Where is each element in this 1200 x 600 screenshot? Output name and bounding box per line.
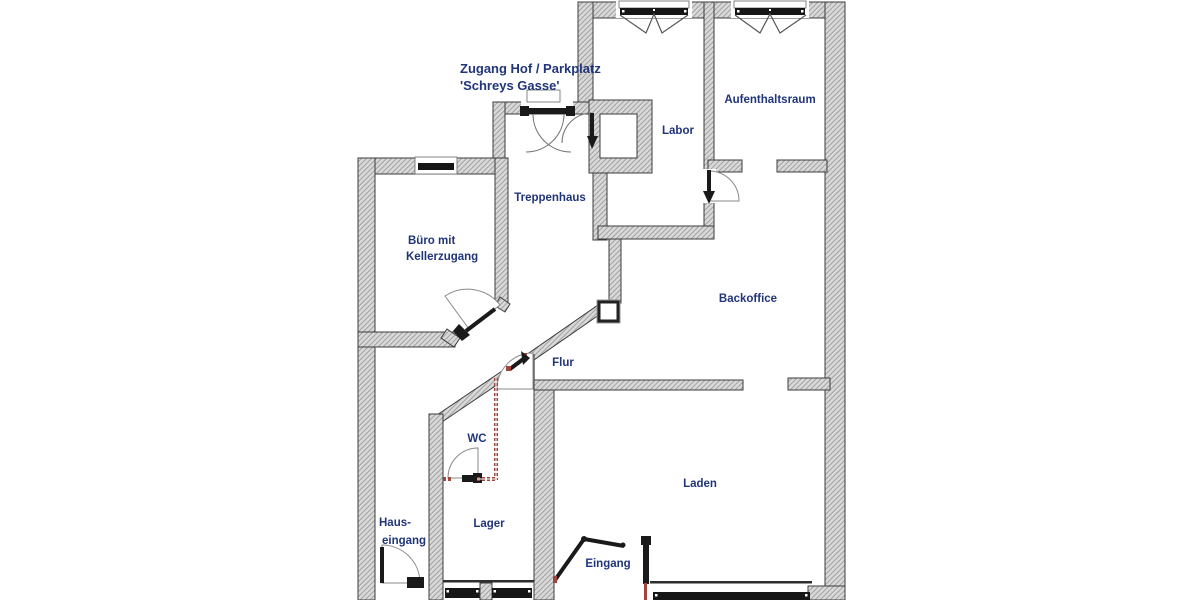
- room-label-hauseingang-line2: eingang: [382, 535, 426, 547]
- lager-window-left: [445, 588, 480, 598]
- room-label-lager: Lager: [473, 518, 505, 530]
- window-mullion: [480, 583, 492, 600]
- room-label-flur: Flur: [552, 357, 574, 369]
- lager-window-right: [492, 588, 532, 598]
- eingang-side-leaf: [643, 538, 649, 584]
- room-label-labor: Labor: [662, 125, 694, 137]
- laden-window: [653, 592, 810, 600]
- site-access-label-line1: Zugang Hof / Parkplatz: [460, 61, 601, 76]
- room-label-buero-line1: Büro mit: [408, 235, 455, 247]
- room-label-aufenthaltsraum: Aufenthaltsraum: [724, 94, 815, 106]
- column: [597, 300, 620, 323]
- room-label-hauseingang-line1: Haus-: [379, 517, 411, 529]
- laden-window-frame: [650, 581, 812, 584]
- room-label-backoffice: Backoffice: [719, 293, 777, 305]
- floorplan-canvas: Zugang Hof / Parkplatz 'Schreys Gasse' A…: [0, 0, 1200, 600]
- room-label-treppenhaus: Treppenhaus: [514, 192, 586, 204]
- room-label-buero-line2: Kellerzugang: [406, 251, 478, 263]
- lager-window-frame: [443, 580, 534, 583]
- room-label-eingang: Eingang: [585, 558, 630, 570]
- room-label-wc: WC: [467, 433, 486, 445]
- room-label-laden: Laden: [683, 478, 717, 490]
- site-access-label-line2: 'Schreys Gasse': [460, 78, 559, 93]
- window-buero: [415, 157, 457, 174]
- floorplan-page: Zugang Hof / Parkplatz 'Schreys Gasse' A…: [0, 0, 1200, 600]
